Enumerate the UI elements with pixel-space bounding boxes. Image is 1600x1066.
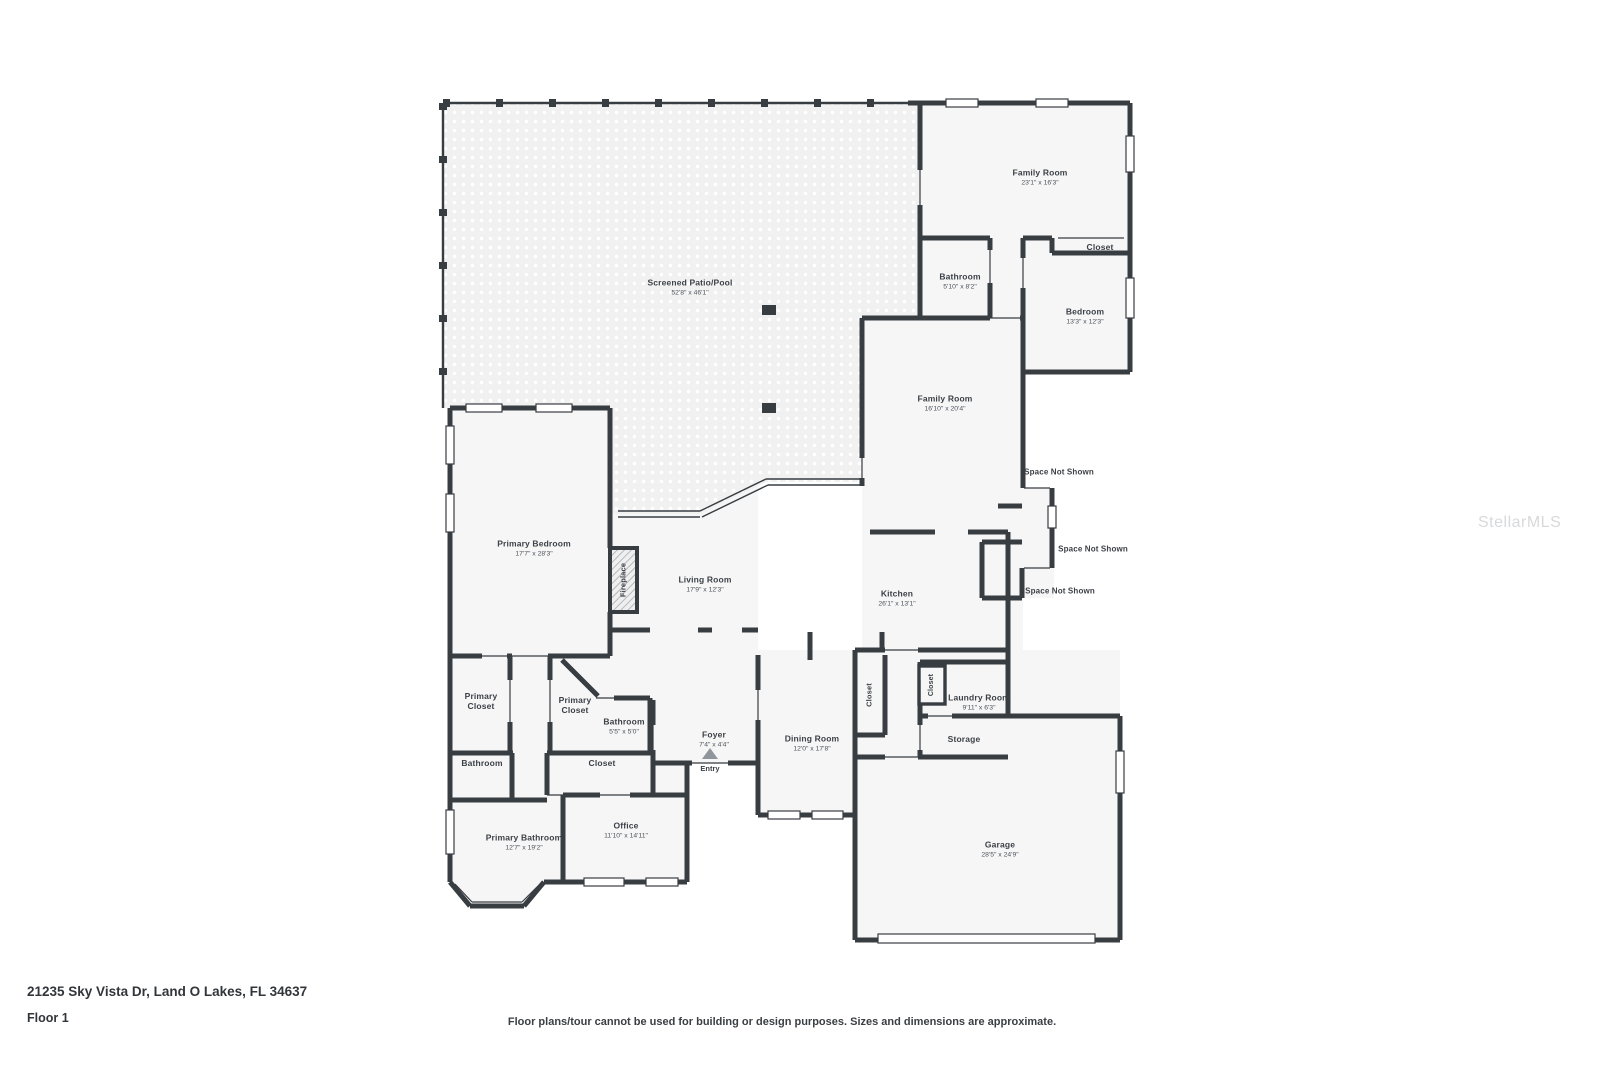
room-name: Bathroom	[939, 272, 980, 282]
label-foyer: Foyer 7'4" x 4'4"	[699, 731, 729, 750]
floor-plan-page: Screened Patio/Pool 52'8" x 46'1" Family…	[0, 0, 1600, 1066]
room-name: Closet	[865, 683, 874, 707]
room-name: Storage	[948, 734, 981, 744]
label-laundry-room: Laundry Room 9'11" x 6'3"	[948, 694, 1010, 713]
floor-plan-drawing	[0, 0, 1600, 1066]
room-name: Garage	[985, 840, 1015, 850]
label-closet-lower: Closet	[589, 759, 616, 769]
room-name: Foyer	[702, 730, 726, 740]
label-office: Office 11'10" x 14'11"	[604, 822, 648, 841]
room-dims: 12'0" x 17'8"	[785, 745, 840, 753]
room-name: Office	[613, 821, 638, 831]
room-name: Family Room	[1012, 168, 1067, 178]
room-dims: 28'5" x 24'9"	[981, 851, 1018, 859]
label-garage: Garage 28'5" x 24'9"	[981, 841, 1018, 860]
label-space-not-shown-2: Space Not Shown	[1058, 544, 1128, 553]
label-storage: Storage	[948, 735, 981, 745]
label-family-room-upper: Family Room 23'1" x 16'3"	[1012, 169, 1067, 188]
room-dims: 5'10" x 8'2"	[939, 283, 980, 291]
room-name: Primary Bathroom	[486, 833, 563, 843]
room-name: Space Not Shown	[1058, 544, 1128, 553]
room-name: Space Not Shown	[1025, 586, 1095, 595]
label-living-room: Living Room 17'9" x 12'3"	[678, 576, 731, 595]
room-name: Fireplace	[619, 563, 628, 597]
room-dims: 16'10" x 20'4"	[917, 405, 972, 413]
label-closet-small: Closet	[928, 674, 936, 696]
room-name: Primary Closet	[559, 695, 592, 715]
room-name: Bathroom	[461, 758, 502, 768]
room-dims: 17'9" x 12'3"	[678, 586, 731, 594]
label-space-not-shown-1: Space Not Shown	[1024, 467, 1094, 476]
room-name: Bathroom	[603, 717, 644, 727]
room-name: Kitchen	[881, 589, 913, 599]
label-screened-patio: Screened Patio/Pool 52'8" x 46'1"	[647, 279, 732, 298]
room-name: Closet	[928, 674, 935, 696]
room-name: Primary Bedroom	[497, 539, 571, 549]
label-entry: Entry	[700, 764, 719, 773]
room-name: Closet	[589, 758, 616, 768]
room-dims: 9'11" x 6'3"	[948, 704, 1010, 712]
label-closet-tall: Closet	[866, 683, 875, 707]
room-dims: 26'1" x 13'1"	[878, 600, 915, 608]
room-name: Dining Room	[785, 734, 840, 744]
room-name: Laundry Room	[948, 693, 1010, 703]
room-name: Entry	[700, 764, 719, 773]
room-name: Primary Closet	[465, 691, 498, 711]
label-bedroom: Bedroom 13'3" x 12'3"	[1066, 308, 1104, 327]
room-name: Family Room	[917, 394, 972, 404]
room-dims: 13'3" x 12'3"	[1066, 318, 1104, 326]
label-bathroom-mid: Bathroom 5'5" x 5'0"	[603, 718, 644, 737]
label-fireplace: Fireplace	[620, 563, 629, 597]
label-primary-closet-right: Primary Closet	[548, 696, 602, 716]
label-bathroom-upper: Bathroom 5'10" x 8'2"	[939, 273, 980, 292]
room-dims: 17'7" x 28'3"	[497, 550, 571, 558]
property-address: 21235 Sky Vista Dr, Land O Lakes, FL 346…	[27, 984, 307, 999]
disclaimer-text: Floor plans/tour cannot be used for buil…	[0, 1016, 1564, 1028]
stellar-mls-watermark: StellarMLS	[1478, 514, 1561, 532]
label-closet-upper: Closet	[1087, 243, 1114, 253]
room-name: Space Not Shown	[1024, 467, 1094, 476]
room-name: Closet	[1087, 242, 1114, 252]
room-dims: 52'8" x 46'1"	[647, 289, 732, 297]
room-dims: 5'5" x 5'0"	[603, 728, 644, 736]
label-space-not-shown-3: Space Not Shown	[1025, 586, 1095, 595]
room-name: Screened Patio/Pool	[647, 278, 732, 288]
room-dims: 11'10" x 14'11"	[604, 832, 648, 840]
room-name: Bedroom	[1066, 307, 1104, 317]
label-kitchen: Kitchen 26'1" x 13'1"	[878, 590, 915, 609]
room-name: Living Room	[678, 575, 731, 585]
label-primary-bedroom: Primary Bedroom 17'7" x 28'3"	[497, 540, 571, 559]
room-dims: 7'4" x 4'4"	[699, 741, 729, 749]
room-dims: 23'1" x 16'3"	[1012, 179, 1067, 187]
label-primary-bathroom: Primary Bathroom 12'7" x 19'2"	[486, 834, 563, 853]
label-family-room-main: Family Room 16'10" x 20'4"	[917, 395, 972, 414]
label-primary-closet-left: Primary Closet	[454, 692, 508, 712]
room-dims: 12'7" x 19'2"	[486, 844, 563, 852]
label-dining-room: Dining Room 12'0" x 17'8"	[785, 735, 840, 754]
label-bathroom-lower: Bathroom	[461, 759, 502, 769]
